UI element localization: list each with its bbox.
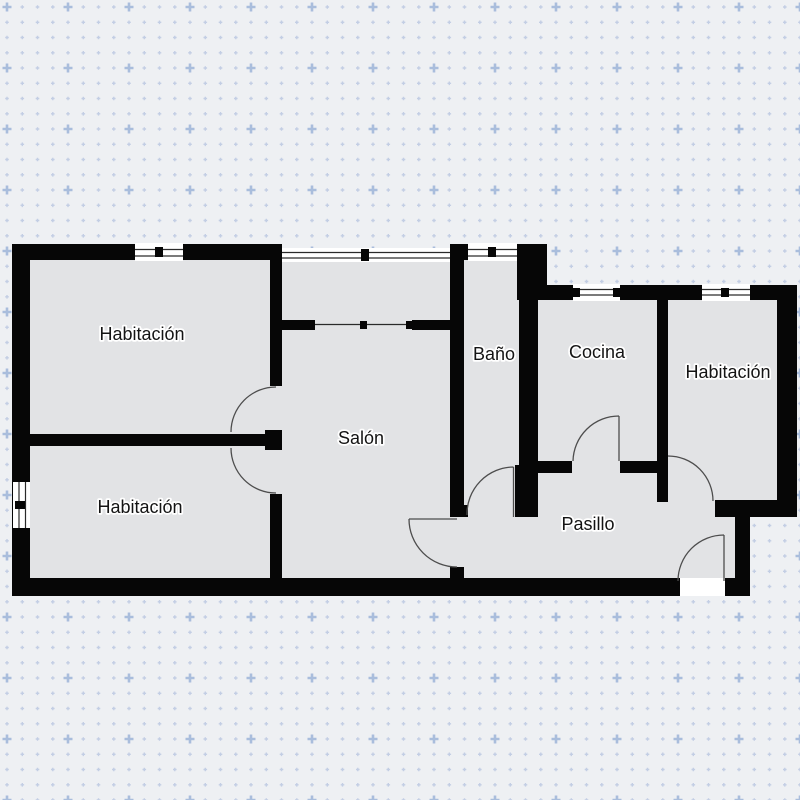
- wall-kitchen-bottom-right: [620, 461, 660, 473]
- room-label-habitacion-3: Habitación: [685, 362, 770, 382]
- wall-salon-right-stub: [450, 567, 464, 578]
- room-label-habitacion-2: Habitación: [97, 497, 182, 517]
- window-bedroom3-top: [702, 284, 750, 301]
- window-bedroom2-left: [13, 482, 30, 528]
- room-bano[interactable]: [464, 261, 519, 504]
- window-bedroom1-top: [135, 243, 183, 261]
- wall-salon-left-upper: [270, 244, 282, 386]
- window-balcony-glazing: [282, 248, 450, 262]
- wall-salon-right: [450, 253, 464, 517]
- wall-kitchen-bottom-left: [538, 461, 572, 473]
- room-label-bano: Baño: [473, 344, 515, 364]
- wall-bath-kitchen: [519, 300, 538, 465]
- wall-balcony-inner-left: [278, 320, 315, 330]
- floor-plan-page: Habitación Habitación Salón Baño Cocina …: [0, 0, 800, 800]
- balcony-top-outside: [282, 238, 450, 249]
- room-salon[interactable]: [282, 330, 450, 576]
- floor-plan-canvas: Habitación Habitación Salón Baño Cocina …: [0, 0, 800, 800]
- entrance-threshold: [680, 578, 725, 596]
- room-cocina[interactable]: [538, 300, 657, 460]
- wall-bedroom-divider: [12, 434, 276, 446]
- wall-outer-bottom: [12, 578, 750, 596]
- wall-salon-left-lower: [270, 494, 282, 578]
- room-habitacion-1[interactable]: [30, 260, 270, 430]
- room-habitacion-3[interactable]: [668, 300, 777, 499]
- room-label-cocina: Cocina: [569, 342, 626, 362]
- wall-bath-bottom-stub: [450, 505, 468, 517]
- room-label-habitacion-1: Habitación: [99, 324, 184, 344]
- room-label-pasillo: Pasillo: [561, 514, 614, 534]
- wall-outer-left: [12, 244, 30, 596]
- wall-outer-right: [777, 285, 797, 502]
- window-kitchen-top: [573, 284, 620, 301]
- wall-bedroom3-bottom: [715, 500, 797, 517]
- room-label-salon: Salón: [338, 428, 384, 448]
- window-bath-top: [468, 243, 517, 261]
- wall-kitchen-bedroom3: [657, 285, 668, 502]
